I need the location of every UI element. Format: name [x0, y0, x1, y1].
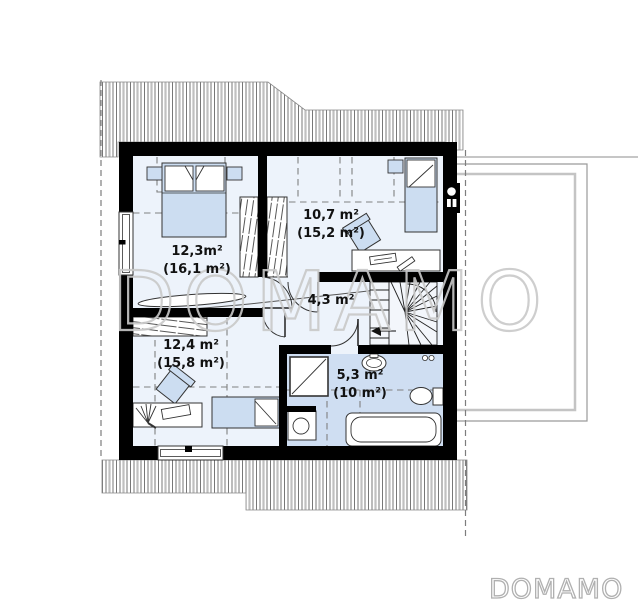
room-area-label-bedroom2: 10,7 m² (15,2 m²): [297, 207, 365, 243]
room-area-label-bedroom1: 12,3m² (16,1 m²): [163, 243, 231, 279]
single-bed-room3: [212, 397, 280, 428]
double-bed: [162, 163, 226, 237]
bathtub-symbol: [346, 413, 441, 446]
hallway-area: 4,3 m²: [308, 292, 355, 310]
wardrobe-bedroom1: [240, 197, 258, 277]
single-bed-room2: [405, 158, 437, 232]
wall-interior-bathroom-west: [279, 345, 287, 447]
wall-interior-bedroom1-south: [133, 308, 263, 317]
ventilation-chimney-icon: [443, 183, 460, 213]
window-left: [119, 212, 133, 275]
wall-exterior-left: [119, 142, 133, 460]
bedroom2-area: 10,7 m²: [297, 207, 365, 225]
wall-interior-hallway-north: [318, 272, 443, 282]
wall-interior-bedrooms-divider: [258, 156, 267, 277]
toilet-symbol: [410, 388, 443, 406]
window-bottom: [158, 446, 223, 460]
bedroom3-area: 12,4 m²: [157, 337, 225, 355]
bedroom3-floor-area: (15,8 m²): [157, 355, 225, 373]
brand-logo: DOMAMO: [489, 576, 623, 603]
bathroom-floor-area: (10 m²): [333, 385, 387, 403]
wall-interior-bathroom-north-east: [358, 345, 443, 354]
wall-stub-bathroom: [287, 406, 316, 412]
garage-roof-outline: [457, 157, 638, 421]
desk-room3: [133, 403, 202, 428]
desk-room2: [352, 250, 440, 271]
wardrobe-room3: [133, 317, 207, 336]
room-area-label-bedroom3: 12,4 m² (15,8 m²): [157, 337, 225, 373]
bathroom-area: 5,3 m²: [333, 367, 387, 385]
nightstand-left: [147, 167, 162, 180]
shower-symbol: [290, 357, 328, 396]
nightstand-right: [227, 167, 242, 180]
floorplan-page: DOMAMO 12,3m² (16,1 m²) 10,7 m² (15,2 m²…: [0, 0, 640, 607]
wardrobe-room2: [267, 197, 287, 277]
washing-machine-symbol: [288, 411, 316, 440]
room-area-label-bathroom: 5,3 m² (10 m²): [333, 367, 387, 403]
bedroom1-floor-area: (16,1 m²): [163, 261, 231, 279]
bedroom2-floor-area: (15,2 m²): [297, 225, 365, 243]
staircase: [370, 282, 437, 345]
roof-overhang-hatch-bottom: [102, 460, 467, 510]
bedroom1-area: 12,3m²: [163, 243, 231, 261]
room-area-label-hallway: 4,3 m²: [308, 292, 355, 310]
nightstand-room2: [388, 160, 403, 173]
wall-exterior-top: [119, 142, 457, 156]
